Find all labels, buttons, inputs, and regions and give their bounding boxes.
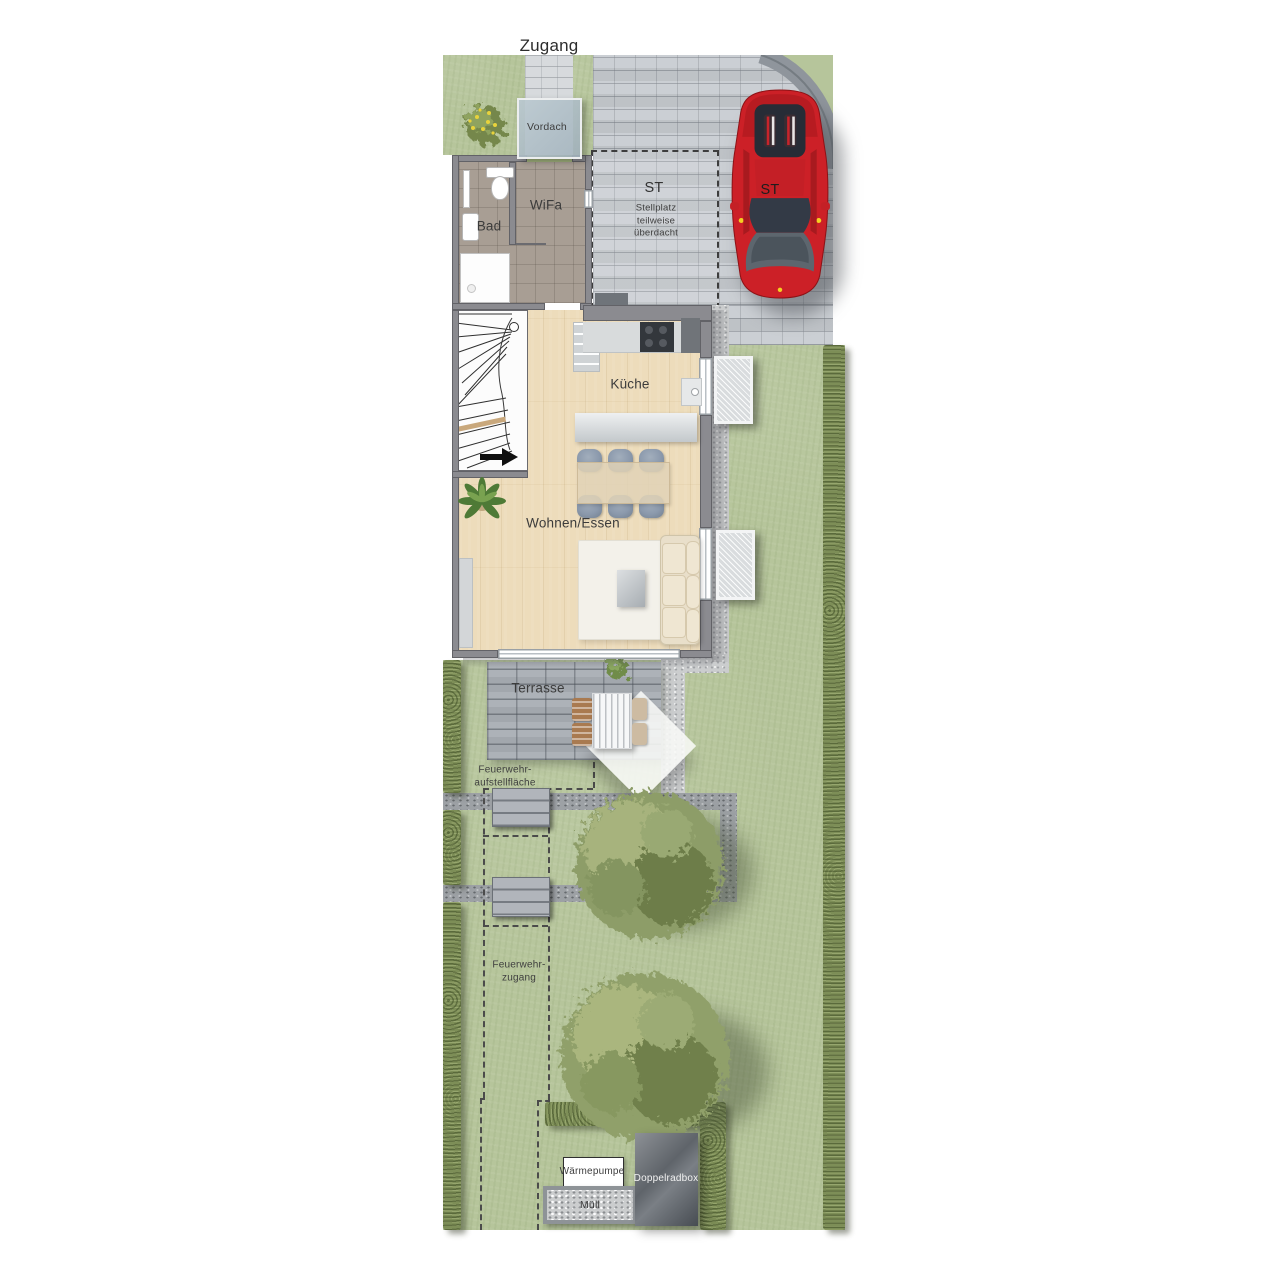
flowering-shrub	[455, 95, 515, 155]
sofa-cushion	[662, 607, 686, 638]
fire-access-line2: zugang	[492, 972, 545, 985]
garden-steps-lower	[492, 877, 550, 917]
fire-lane-line	[483, 925, 548, 927]
coffee-table	[617, 570, 645, 607]
kitchen-label: Küche	[610, 377, 649, 392]
fire-lane-line	[480, 1098, 482, 1230]
parking-note-line1: Stellplatz	[634, 202, 678, 215]
fire-access-line1: Feuerwehr-	[492, 960, 545, 973]
sofa	[660, 535, 700, 645]
towel-radiator	[463, 170, 470, 208]
trash-area-label: Müll	[580, 1199, 600, 1212]
door-swing	[516, 243, 546, 245]
terrace-chair	[632, 698, 647, 720]
entry-hall-label: WiFa	[530, 198, 562, 213]
sports-car	[729, 88, 831, 300]
sideboard	[459, 558, 473, 648]
staircase	[452, 310, 528, 471]
parking-note-line2: teilweise	[634, 215, 678, 228]
kitchen-island	[575, 413, 697, 442]
burner	[645, 326, 653, 334]
parking-stall-label: ST	[645, 180, 664, 196]
wall	[680, 650, 712, 658]
toilet-bowl	[491, 176, 509, 200]
entrance-walkway	[525, 55, 573, 100]
fire-staging-label: Feuerwehr- aufstellfläche	[474, 765, 535, 790]
parking-stall-note: Stellplatz teilweise überdacht	[634, 202, 678, 240]
shower	[460, 253, 510, 303]
shower-drain	[467, 284, 476, 293]
canopy-label: Vordach	[527, 121, 567, 134]
property-site: ST Stellplatz teilweise überdacht Terras…	[443, 55, 847, 1230]
hedge-west	[443, 660, 461, 793]
window-living	[699, 528, 712, 600]
kitchen-end-cabinet	[681, 318, 700, 353]
wall	[585, 155, 592, 190]
window	[584, 190, 593, 208]
burner	[659, 326, 667, 334]
living-dining-label: Wohnen/Essen	[526, 516, 620, 531]
sofa-back-cushion	[686, 575, 700, 609]
wall	[452, 155, 527, 162]
sofa-cushion	[662, 543, 686, 574]
wall	[700, 415, 712, 528]
car-stall-label: ST	[761, 182, 780, 198]
site-plan-canvas: Zugang ST Stellplatz teilweise überdacht	[0, 0, 1280, 1280]
hedge-east	[823, 345, 845, 1230]
wall	[452, 155, 459, 310]
wall	[452, 650, 498, 658]
entrance-label: Zugang	[520, 36, 579, 56]
sofa-cushion	[662, 575, 686, 606]
back-doormat	[595, 293, 628, 305]
burner	[659, 339, 667, 347]
burner	[645, 339, 653, 347]
parking-note-line3: überdacht	[634, 227, 678, 240]
fire-staging-line1: Feuerwehr-	[474, 765, 535, 778]
hedge-west	[443, 902, 461, 1230]
lounge-chair	[572, 698, 592, 721]
sofa-back-cushion	[686, 609, 700, 643]
wall	[452, 303, 545, 310]
terrace-label: Terrasse	[511, 681, 564, 696]
wall	[585, 208, 592, 310]
lounge-chair	[572, 723, 592, 746]
garden-steps-upper	[492, 788, 550, 827]
window-well	[716, 530, 755, 600]
house-shadow-south	[463, 658, 712, 668]
fire-staging-line2: aufstellfläche	[474, 777, 535, 790]
wall	[700, 321, 712, 358]
heat-pump-label: Wärmepumpe	[560, 1166, 625, 1179]
bike-box-label: Doppelradbox	[634, 1173, 699, 1186]
terrace-chair	[632, 723, 647, 745]
hedge-west	[443, 810, 461, 885]
sofa-back-cushion	[686, 541, 700, 575]
garden-tree	[547, 763, 757, 973]
indoor-plant	[458, 475, 506, 525]
window-well	[714, 356, 753, 424]
fire-access-label: Feuerwehr- zugang	[492, 960, 545, 985]
terrace-table	[592, 693, 632, 749]
dining-table	[577, 462, 670, 504]
bathroom-label: Bad	[477, 219, 502, 234]
terrace-sliding-door	[498, 649, 680, 659]
sink-drain	[691, 388, 699, 396]
fire-lane-line	[483, 835, 548, 837]
